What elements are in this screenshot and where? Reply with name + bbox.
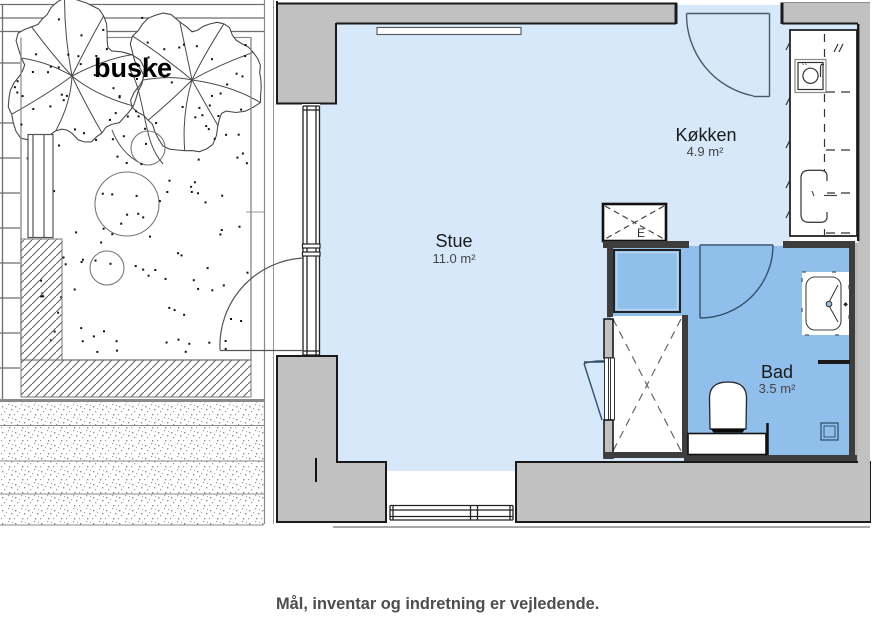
svg-text:3.5 m²: 3.5 m² bbox=[759, 381, 797, 396]
svg-text:Stue: Stue bbox=[435, 231, 472, 251]
svg-text:Køkken: Køkken bbox=[675, 125, 736, 145]
svg-text:E: E bbox=[637, 226, 645, 240]
svg-text:Bad: Bad bbox=[761, 362, 793, 382]
svg-text:buske: buske bbox=[94, 53, 172, 83]
svg-text:Mål, inventar og indretning er: Mål, inventar og indretning er vejledend… bbox=[276, 595, 599, 613]
svg-text:11.0 m²: 11.0 m² bbox=[432, 251, 476, 266]
svg-text:4.9 m²: 4.9 m² bbox=[687, 144, 725, 159]
